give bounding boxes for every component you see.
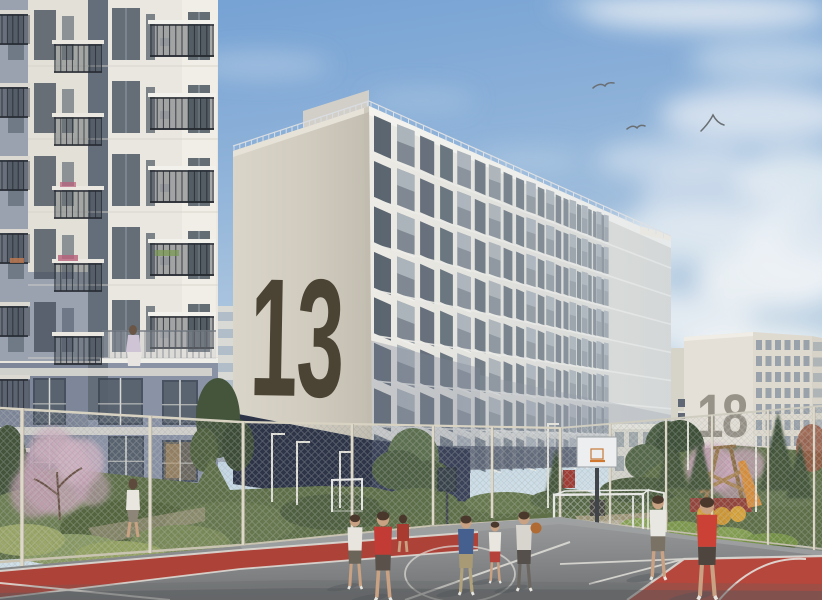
svg-text:13: 13 [248, 244, 345, 433]
